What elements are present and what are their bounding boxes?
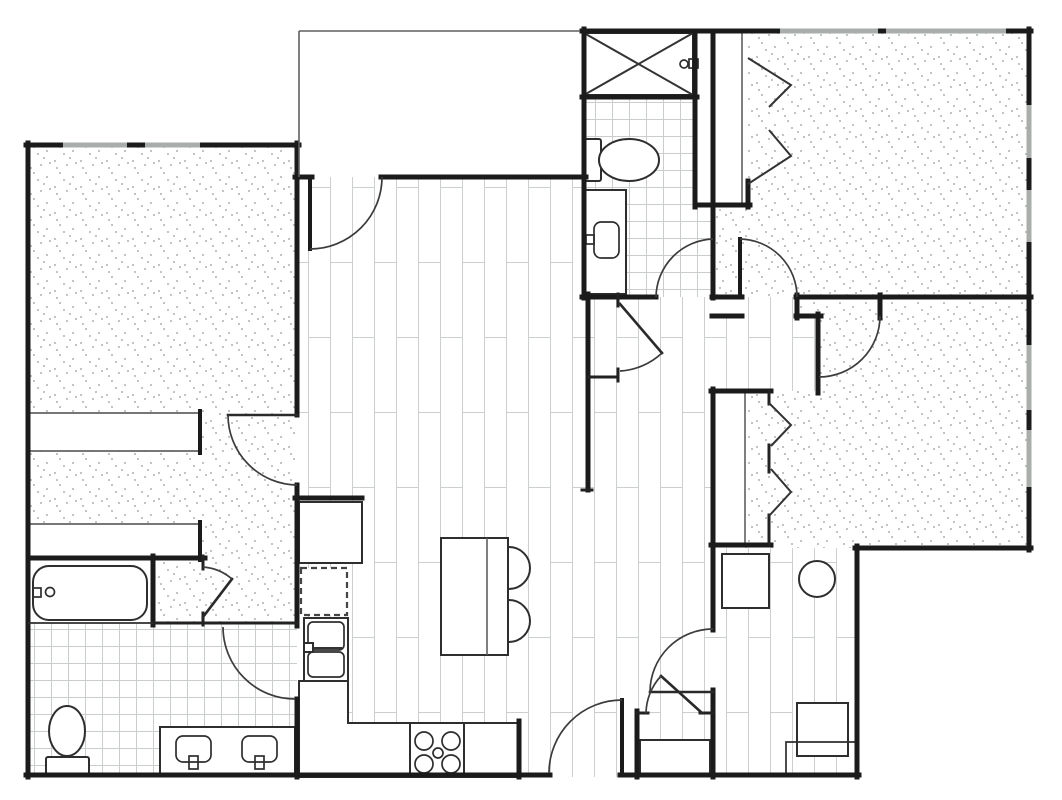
patio-floor xyxy=(299,31,582,177)
primary-closet-nook-carpet xyxy=(153,558,297,623)
bedroom2-passage-plank xyxy=(741,297,797,316)
water-heater xyxy=(722,554,769,608)
kitchen-faucet-base xyxy=(304,643,313,652)
utility-washer xyxy=(797,703,848,756)
bedroom3-vestibule-plank xyxy=(713,316,818,391)
closet-shelf-upper xyxy=(28,413,200,451)
range xyxy=(410,723,464,777)
floor-plan-svg xyxy=(0,0,1062,800)
toilet-2-bowl xyxy=(599,139,659,181)
closet-shelf-lower xyxy=(28,524,200,558)
toilet-primary-bowl xyxy=(49,706,85,756)
bedroom-2-carpet xyxy=(713,31,1029,297)
entry-closet-shelf xyxy=(640,740,710,774)
bedroom-primary-carpet xyxy=(28,145,297,558)
kitchen-island xyxy=(441,538,508,655)
floor-plan-page xyxy=(0,0,1062,800)
kitchen-counter-north xyxy=(299,502,362,563)
toilet-primary-tank xyxy=(46,757,89,774)
vanity-primary xyxy=(160,727,295,775)
plumbing-chase xyxy=(695,31,748,205)
refrigerator-dashed xyxy=(301,568,347,615)
bathtub xyxy=(33,566,147,620)
utility-round-equipment xyxy=(799,561,835,597)
bedroom3-closet-floor xyxy=(713,391,747,545)
